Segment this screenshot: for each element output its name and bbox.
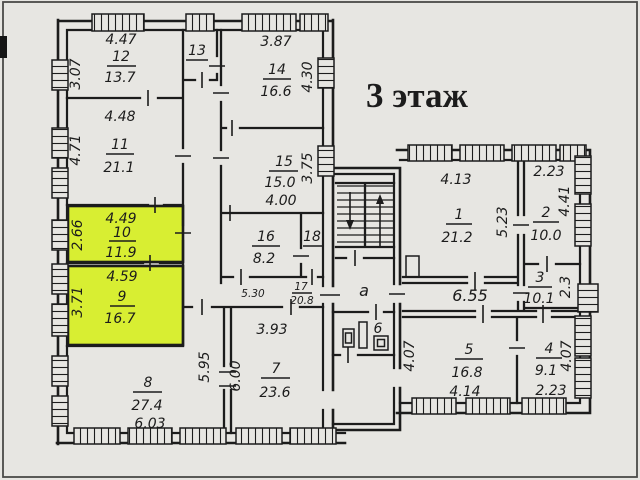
floor-plan-scan: 3 этаж 4.47 12 13.7 3.07 13 4.48 11 21.1… [0,0,640,480]
room-11-height-dim: 4.71 [68,134,84,165]
room-11-number: 11 [111,137,129,153]
room-9-height-dim: 3.71 [70,286,86,317]
room-16-number: 16 [257,229,275,245]
room-18-number: 18 [303,229,321,245]
room-10-number: 10 [113,225,131,241]
corridor-17-number: 17 [294,281,308,293]
right-corridor-width-dim: 6.55 [452,286,488,305]
room-2-number: 2 [542,205,551,221]
room-9-width-dim: 4.59 [106,269,137,285]
room-2-width-dim: 2.23 [533,164,564,180]
room-7-area: 23.6 [259,385,290,401]
room-14-area: 16.6 [260,84,291,100]
room-10-area: 11.9 [105,245,136,261]
floor-plan-canvas: 3 этаж 4.47 12 13.7 3.07 13 4.48 11 21.1… [0,0,640,480]
room-1-number: 1 [455,207,464,223]
room-4-number: 4 [545,341,554,357]
room-14-height-dim: 4.30 [300,61,316,92]
room-13-label: 13 [186,43,208,60]
room-7-number: 7 [272,361,281,377]
room-1-width-dim: 4.13 [440,172,471,188]
room-1-area: 21.2 [441,230,472,246]
wc-room-label: 6 [374,321,383,337]
room-8-area: 27.4 [131,398,162,414]
room-10-height-dim: 2.66 [70,219,86,250]
floor-title: 3 этаж [366,76,468,115]
room-1-height-dim: 5.23 [495,206,511,237]
room-11-area: 21.1 [103,160,134,176]
room-14-width-dim: 3.87 [260,34,291,50]
room-7-width-dim: 3.93 [256,322,287,338]
room-2-area: 10.0 [530,228,561,244]
room-14-number: 14 [268,62,286,78]
room-16-area: 8.2 [253,251,275,267]
room-12-width-dim: 4.47 [105,32,136,48]
room-3-number: 3 [536,270,545,286]
room-5-height-dim: 4.07 [402,340,418,371]
room-8-width-dim: 6.03 [134,416,165,432]
room-15-height-dim: 3.75 [300,152,316,183]
room-3-area: 10.1 [523,291,554,307]
room-5-number: 5 [465,342,474,358]
room-15-number: 15 [275,154,293,170]
room-2-height-dim: 4.41 [557,185,573,216]
room-9-area: 16.7 [104,311,135,327]
room-7-height-dim: 6.00 [228,360,244,391]
room-12-height-dim: 3.07 [68,58,84,89]
corridor-17-width-dim: 5.30 [241,288,265,300]
room-4-height-dim: 4.07 [559,340,575,371]
room-4-area: 9.1 [535,363,557,379]
stair-lobby-label: а [359,281,369,300]
corridor-17-area: 20.8 [290,295,314,307]
room-13-number: 13 [188,43,206,59]
room-5-width-dim: 4.14 [449,384,480,400]
room-8-number: 8 [144,375,153,391]
room-15-area: 15.0 [264,175,295,191]
room-4-width-dim: 2.23 [535,383,566,399]
room-15-width-dim: 4.00 [265,193,296,209]
scan-edge-tab [0,36,7,58]
room-8-height-dim: 5.95 [197,351,213,382]
room-18-label: 18 [303,229,322,246]
room-12-area: 13.7 [104,70,135,86]
room-12-number: 12 [112,49,130,65]
room-5-area: 16.8 [451,365,482,381]
room-11-width-dim: 4.48 [104,109,135,125]
room-9-number: 9 [118,289,127,305]
room-3-height-dim: 2.3 [558,276,574,298]
